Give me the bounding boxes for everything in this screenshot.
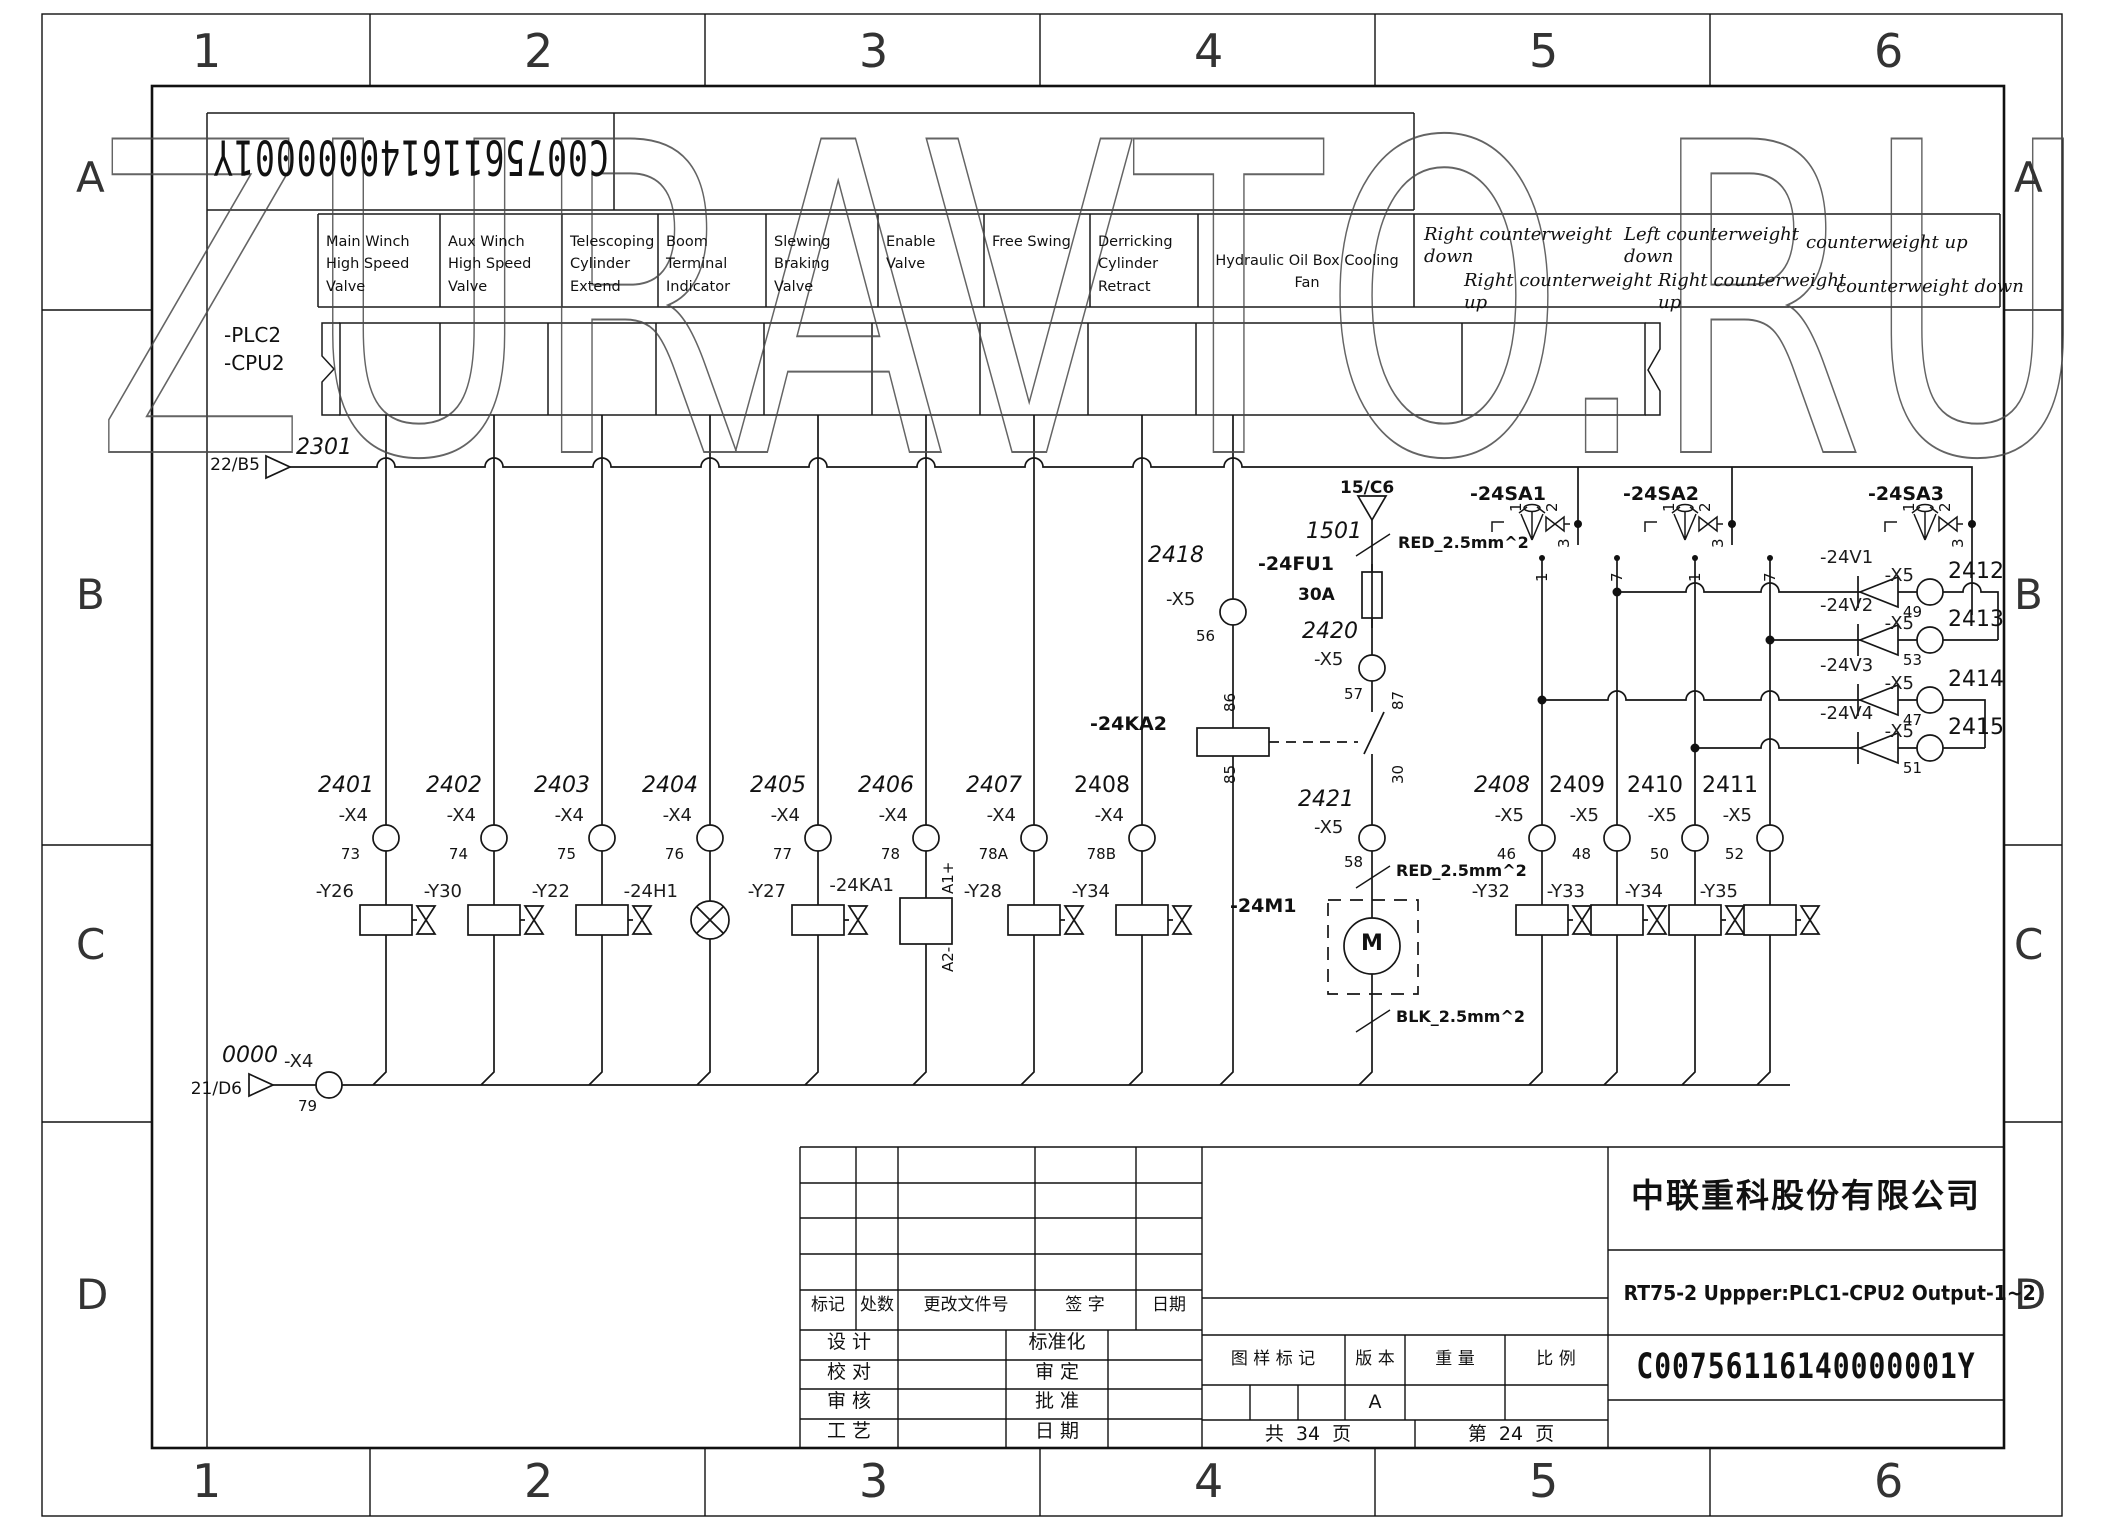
device-label--Y30: -Y30 xyxy=(370,882,462,902)
function-label-4: Slewing Braking Valve xyxy=(774,231,872,298)
label-middle-feed-wire1: 1501 xyxy=(1306,520,1362,544)
counterweight-label-5: counterweight down xyxy=(1836,276,2024,298)
terminal-label: -X4 xyxy=(966,806,1016,826)
terminal-pin: 74 xyxy=(428,846,468,863)
label-middle-ka2-terminal: -X5 xyxy=(1166,590,1195,610)
wire-number-2407: 2407 xyxy=(950,774,1022,798)
device-label--24V2: -24V2 xyxy=(1820,596,1873,616)
switch-pos-2: 2 xyxy=(1544,502,1561,512)
wire-number-2406: 2406 xyxy=(842,774,914,798)
zone-letter-left: A xyxy=(76,155,105,201)
sign-label: 批 准 xyxy=(1008,1391,1106,1412)
wire-number-2401: 2401 xyxy=(302,774,374,798)
function-label-0: Main Winch High Speed Valve xyxy=(326,231,434,298)
label-middle-feed-pin2: 57 xyxy=(1344,686,1363,703)
terminal-label: -X5 xyxy=(1474,806,1524,826)
rev-header-cell: 处数 xyxy=(849,1296,905,1315)
terminal-pin-79: 79 xyxy=(298,1098,317,1115)
zone-number-top-5: 5 xyxy=(1529,26,1558,77)
terminal-pin: 77 xyxy=(752,846,792,863)
cpu-label: -CPU2 xyxy=(224,352,285,374)
label-middle-feed-fuse_rating: 30A xyxy=(1298,586,1335,605)
terminal-pin: 51 xyxy=(1884,760,1922,777)
function-label-2: Telescoping Cylinder Extend xyxy=(570,231,652,298)
function-label-7: Derricking Cylinder Retract xyxy=(1098,231,1192,298)
label-middle-feed-contact_bottom: 30 xyxy=(1390,765,1407,784)
zone-letter-left: B xyxy=(76,572,105,618)
device-label--24H1: -24H1 xyxy=(586,882,678,902)
zone-letter-right: A xyxy=(2014,155,2043,201)
wire-number-2404: 2404 xyxy=(626,774,698,798)
sign-label: 校 对 xyxy=(801,1362,897,1383)
terminal-pin: 78B xyxy=(1076,846,1116,863)
device-label--Y28: -Y28 xyxy=(910,882,1002,902)
label-middle-feed-spec_mid: RED_2.5mm^2 xyxy=(1396,862,1527,880)
wire-number-2408: 2408 xyxy=(1058,774,1130,798)
wire-number-2405: 2405 xyxy=(734,774,806,798)
switch-pos-2: 2 xyxy=(1697,502,1714,512)
rev-header-cell: 标记 xyxy=(800,1296,856,1315)
terminal-label: -X5 xyxy=(1862,566,1914,586)
switch-pin-3: 3 xyxy=(1556,538,1573,548)
label-middle-ka2-pin_top: 86 xyxy=(1222,693,1239,712)
switch-pos-1: 1 xyxy=(1901,502,1918,512)
total-pages: 共 34 页 xyxy=(1208,1424,1408,1445)
connector-pin-label: 7 xyxy=(1609,572,1626,582)
label-middle-feed-ref: 15/C6 xyxy=(1340,479,1394,498)
counterweight-label-0: Right counterweight down xyxy=(1424,224,1612,267)
zone-number-bottom-6: 6 xyxy=(1874,1456,1903,1507)
device-label--Y34: -Y34 xyxy=(1018,882,1110,902)
device-label--Y27: -Y27 xyxy=(694,882,786,902)
terminal-label: -X4 xyxy=(858,806,908,826)
zone-number-top-1: 1 xyxy=(192,26,221,77)
terminal-label: -X5 xyxy=(1702,806,1752,826)
label-middle-feed-spec_bottom: BLK_2.5mm^2 xyxy=(1396,1008,1525,1026)
terminal-pin: 75 xyxy=(536,846,576,863)
counterweight-label-1: Right counterweight up xyxy=(1464,270,1652,313)
label-middle-feed-motor: -24M1 xyxy=(1230,896,1296,917)
wire-number-2412: 2412 xyxy=(1948,560,2004,584)
device-label--24V3: -24V3 xyxy=(1820,656,1873,676)
function-label-5: Enable Valve xyxy=(886,231,978,276)
zone-number-top-3: 3 xyxy=(859,26,888,77)
switch-pos-1: 1 xyxy=(1661,502,1678,512)
terminal-pin: 76 xyxy=(644,846,684,863)
doc-number: C00756116140000001Y xyxy=(1612,1348,2000,1386)
terminal-X4: -X4 xyxy=(284,1052,313,1072)
function-label-3: Boom Terminal Indicator xyxy=(666,231,760,298)
terminal-label: -X5 xyxy=(1549,806,1599,826)
label-middle-feed-term2: -X5 xyxy=(1314,650,1343,670)
motor-letter: M xyxy=(1360,932,1384,956)
wire-ref-21D6: 21/D6 xyxy=(176,1080,242,1099)
counterweight-label-3: Right counterweight up xyxy=(1658,270,1846,313)
switch-pin-3: 3 xyxy=(1950,538,1967,548)
sign-label: 日 期 xyxy=(1008,1421,1106,1442)
function-label-8: Hydraulic Oil Box Cooling Fan xyxy=(1206,250,1408,295)
terminal-pin: 78A xyxy=(968,846,1008,863)
plc-label: -PLC2 xyxy=(224,324,281,346)
terminal-label: -X4 xyxy=(318,806,368,826)
device-label--Y35: -Y35 xyxy=(1646,882,1738,902)
zone-number-bottom-2: 2 xyxy=(524,1456,553,1507)
stamp-header-cell: 版 本 xyxy=(1346,1350,1404,1369)
label-middle-feed-term3: -X5 xyxy=(1314,818,1343,838)
terminal-label: -X4 xyxy=(750,806,800,826)
wire-number-2411: 2411 xyxy=(1686,774,1758,798)
device-label--Y26: -Y26 xyxy=(262,882,354,902)
sign-label: 标准化 xyxy=(1008,1332,1106,1353)
company-name: 中联重科股份有限公司 xyxy=(1612,1178,2000,1214)
terminal-label: -X5 xyxy=(1862,614,1914,634)
connector-pin-label: 7 xyxy=(1762,572,1779,582)
switch-pos-2: 2 xyxy=(1937,502,1954,512)
label-middle-feed-pin3: 58 xyxy=(1344,854,1363,871)
label-middle-ka2-wire: 2418 xyxy=(1148,544,1204,568)
rev-header-cell: 更改文件号 xyxy=(906,1296,1026,1315)
zone-letter-right: B xyxy=(2014,572,2043,618)
label-middle-feed-fuse: -24FU1 xyxy=(1258,554,1334,575)
terminal-label: -X5 xyxy=(1862,722,1914,742)
label-middle-ka2-pin: 56 xyxy=(1196,628,1215,645)
terminal-pin: 78 xyxy=(860,846,900,863)
switch-pin-3: 3 xyxy=(1710,538,1727,548)
label-middle-feed-spec_top: RED_2.5mm^2 xyxy=(1398,534,1529,552)
relay-pin-a2: A2- xyxy=(940,947,957,972)
terminal-pin: 50 xyxy=(1629,846,1669,863)
terminal-label: -X5 xyxy=(1627,806,1677,826)
zone-number-top-6: 6 xyxy=(1874,26,1903,77)
device-label--Y22: -Y22 xyxy=(478,882,570,902)
label-middle-ka2-pin_bottom: 85 xyxy=(1222,765,1239,784)
terminal-pin: 53 xyxy=(1884,652,1922,669)
zone-number-bottom-1: 1 xyxy=(192,1456,221,1507)
sign-label: 审 定 xyxy=(1008,1362,1106,1383)
label-middle-ka2-coil: -24KA2 xyxy=(1090,714,1167,735)
zone-letter-right: C xyxy=(2014,922,2043,968)
label-middle-feed-wire2: 2420 xyxy=(1302,620,1358,644)
function-label-6: Free Swing xyxy=(992,231,1084,253)
wire-number-2408: 2408 xyxy=(1458,774,1530,798)
wire-number-2414: 2414 xyxy=(1948,668,2004,692)
page-number: 第 24 页 xyxy=(1420,1424,1602,1445)
stamp-header-cell: 图 样 标 记 xyxy=(1203,1350,1343,1369)
terminal-pin: 52 xyxy=(1704,846,1744,863)
connector-pin-label: 1 xyxy=(1687,572,1704,582)
doc-number-rotated: C00756116140000001Y xyxy=(207,130,614,183)
rev-header-cell: 签 字 xyxy=(1050,1296,1120,1315)
counterweight-label-4: counterweight up xyxy=(1806,232,1968,254)
wire-number-2301: 2301 xyxy=(296,436,352,460)
wire-ref-22B5: 22/B5 xyxy=(196,456,260,475)
zone-number-bottom-3: 3 xyxy=(859,1456,888,1507)
zone-number-bottom-4: 4 xyxy=(1194,1456,1223,1507)
terminal-label: -X4 xyxy=(534,806,584,826)
connector-pin-label: 1 xyxy=(1534,572,1551,582)
labels-layer: 112233445566AABBCCDDC00756116140000001YM… xyxy=(0,0,2103,1530)
sign-label: 设 计 xyxy=(801,1332,897,1353)
device-label--24V4: -24V4 xyxy=(1820,704,1873,724)
wire-number-2403: 2403 xyxy=(518,774,590,798)
zone-number-top-2: 2 xyxy=(524,26,553,77)
device-label--24KA1: -24KA1 xyxy=(802,876,894,896)
wire-number-2402: 2402 xyxy=(410,774,482,798)
stamp-header-cell: 比 例 xyxy=(1506,1350,1606,1369)
function-label-1: Aux Winch High Speed Valve xyxy=(448,231,556,298)
rev-header-cell: 日期 xyxy=(1141,1296,1197,1315)
terminal-pin: 73 xyxy=(320,846,360,863)
version-value: A xyxy=(1346,1392,1404,1413)
wire-number-2415: 2415 xyxy=(1948,716,2004,740)
wire-number-2410: 2410 xyxy=(1611,774,1683,798)
wire-number-2413: 2413 xyxy=(1948,608,2004,632)
terminal-label: -X4 xyxy=(642,806,692,826)
label-middle-feed-contact_top: 87 xyxy=(1390,691,1407,710)
schematic-sheet: ZURAVTO.RU 112233445566AABBCCDDC00756116… xyxy=(0,0,2103,1530)
label-middle-feed-wire3: 2421 xyxy=(1298,788,1354,812)
sign-label: 工 艺 xyxy=(801,1421,897,1442)
terminal-label: -X4 xyxy=(1074,806,1124,826)
zone-number-bottom-5: 5 xyxy=(1529,1456,1558,1507)
sign-label: 审 核 xyxy=(801,1391,897,1412)
counterweight-label-2: Left counterweight down xyxy=(1624,224,1799,267)
terminal-pin: 48 xyxy=(1551,846,1591,863)
zone-number-top-4: 4 xyxy=(1194,26,1223,77)
terminal-label: -X4 xyxy=(426,806,476,826)
zone-letter-left: C xyxy=(76,922,105,968)
stamp-header-cell: 重 量 xyxy=(1407,1350,1503,1369)
device-label--24V1: -24V1 xyxy=(1820,548,1873,568)
drawing-title: RT75-2 Uppper:PLC1-CPU2 Output-1~2 xyxy=(1624,1282,1989,1304)
wire-number-0000: 0000 xyxy=(222,1044,278,1068)
terminal-label: -X5 xyxy=(1862,674,1914,694)
zone-letter-left: D xyxy=(76,1272,108,1318)
wire-number-2409: 2409 xyxy=(1533,774,1605,798)
switch-pos-1: 1 xyxy=(1508,502,1525,512)
